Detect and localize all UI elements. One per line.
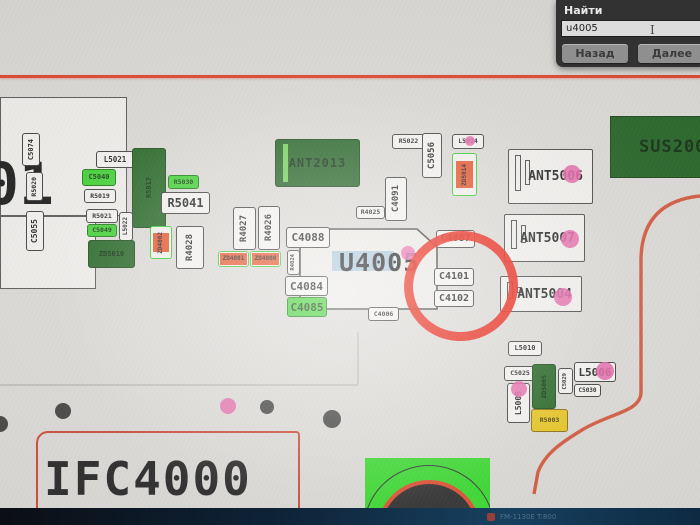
search-input[interactable]: u4005 I — [561, 20, 700, 37]
via-dot — [55, 403, 71, 419]
taskbar-app-icon[interactable] — [487, 513, 495, 521]
find-dialog: Найти u4005 I Назад Далее — [556, 0, 700, 67]
pink-marker-dot — [220, 398, 236, 414]
back-button[interactable]: Назад — [562, 44, 628, 63]
via-dot — [0, 416, 8, 432]
pink-marker-dot — [511, 381, 527, 397]
taskbar-text: FM-1130E T:800 — [500, 513, 556, 521]
find-dialog-title: Найти — [564, 4, 602, 17]
via-dot — [260, 400, 274, 414]
next-button[interactable]: Далее — [638, 44, 700, 63]
pink-marker-dot — [596, 362, 614, 380]
pink-marker-dot — [563, 165, 581, 183]
via-dot — [323, 410, 341, 428]
marker-dot-layer — [0, 0, 700, 525]
boardview-screen: 01 C5074R5020C5055L5021R5017C5040R5019R5… — [0, 0, 700, 525]
text-caret-icon: I — [650, 23, 655, 37]
pink-marker-dot — [561, 230, 579, 248]
search-query-text: u4005 — [566, 23, 598, 34]
pink-marker-dot — [465, 136, 475, 146]
taskbar[interactable]: FM-1130E T:800 — [0, 508, 700, 525]
pink-marker-dot — [554, 288, 572, 306]
board-top-edge-line — [0, 75, 700, 78]
